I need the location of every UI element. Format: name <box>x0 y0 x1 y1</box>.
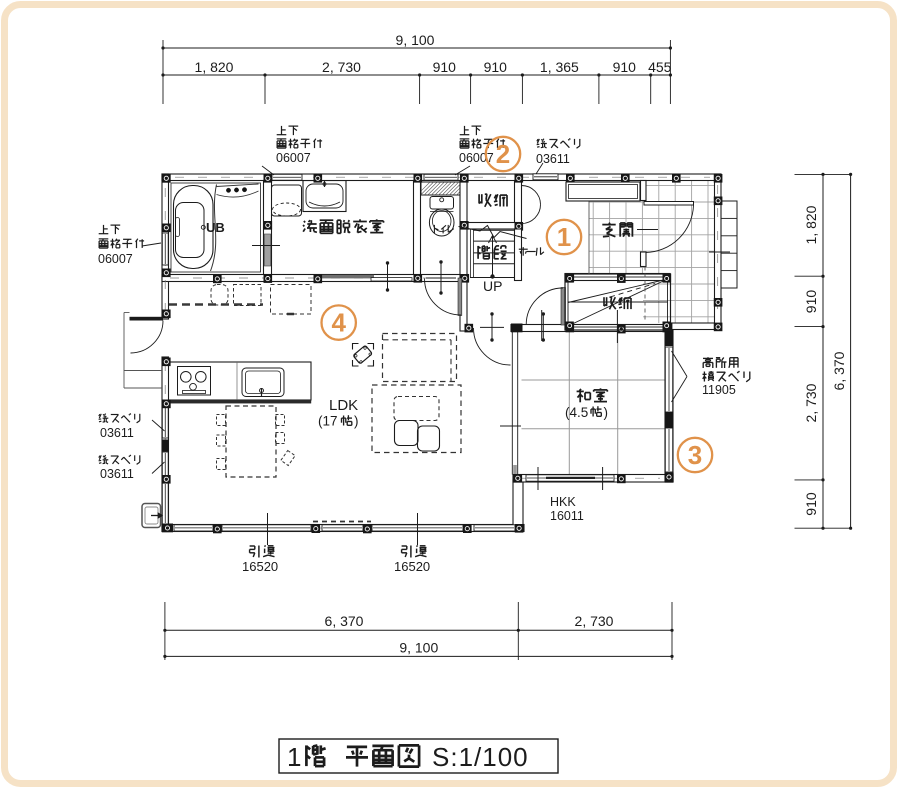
svg-text:06007: 06007 <box>98 252 133 266</box>
svg-text:6, 370: 6, 370 <box>325 613 364 629</box>
svg-text:1: 1 <box>287 742 301 772</box>
svg-text:03611: 03611 <box>536 152 570 166</box>
svg-text:910: 910 <box>433 59 457 75</box>
svg-text:910: 910 <box>484 59 508 75</box>
svg-text:LDK: LDK <box>329 397 358 414</box>
svg-text:2, 730: 2, 730 <box>575 613 614 629</box>
svg-text:11905: 11905 <box>702 383 736 397</box>
svg-text:UP: UP <box>483 278 502 294</box>
svg-text:4: 4 <box>331 308 346 338</box>
svg-text:1: 1 <box>557 222 571 252</box>
svg-text:1, 820: 1, 820 <box>803 205 819 244</box>
svg-text:9, 100: 9, 100 <box>399 640 438 656</box>
svg-text:910: 910 <box>613 59 637 75</box>
svg-text:2, 730: 2, 730 <box>322 59 361 75</box>
svg-text:16520: 16520 <box>394 559 430 574</box>
svg-text:3: 3 <box>688 440 702 470</box>
svg-text:(4.5: (4.5 <box>565 405 588 420</box>
svg-text:1, 820: 1, 820 <box>195 59 234 75</box>
svg-text:): ) <box>354 414 359 429</box>
svg-text:2, 730: 2, 730 <box>803 383 819 422</box>
svg-text:(17: (17 <box>318 414 338 429</box>
svg-text:2: 2 <box>496 139 510 169</box>
svg-text:03611: 03611 <box>100 426 134 440</box>
svg-text:455: 455 <box>648 59 672 75</box>
svg-text:9, 100: 9, 100 <box>396 32 435 48</box>
svg-text:HKK: HKK <box>550 495 576 509</box>
svg-text:): ) <box>604 405 609 420</box>
svg-text:S:1/100: S:1/100 <box>432 742 529 772</box>
svg-text:910: 910 <box>803 492 819 516</box>
svg-text:UB: UB <box>206 220 225 235</box>
svg-text:16011: 16011 <box>550 509 584 523</box>
svg-text:910: 910 <box>803 290 819 314</box>
svg-text:1, 365: 1, 365 <box>540 59 579 75</box>
svg-text:16520: 16520 <box>242 559 278 574</box>
svg-text:6, 370: 6, 370 <box>831 351 847 390</box>
svg-text:06007: 06007 <box>276 151 311 165</box>
svg-text:03611: 03611 <box>100 467 134 481</box>
